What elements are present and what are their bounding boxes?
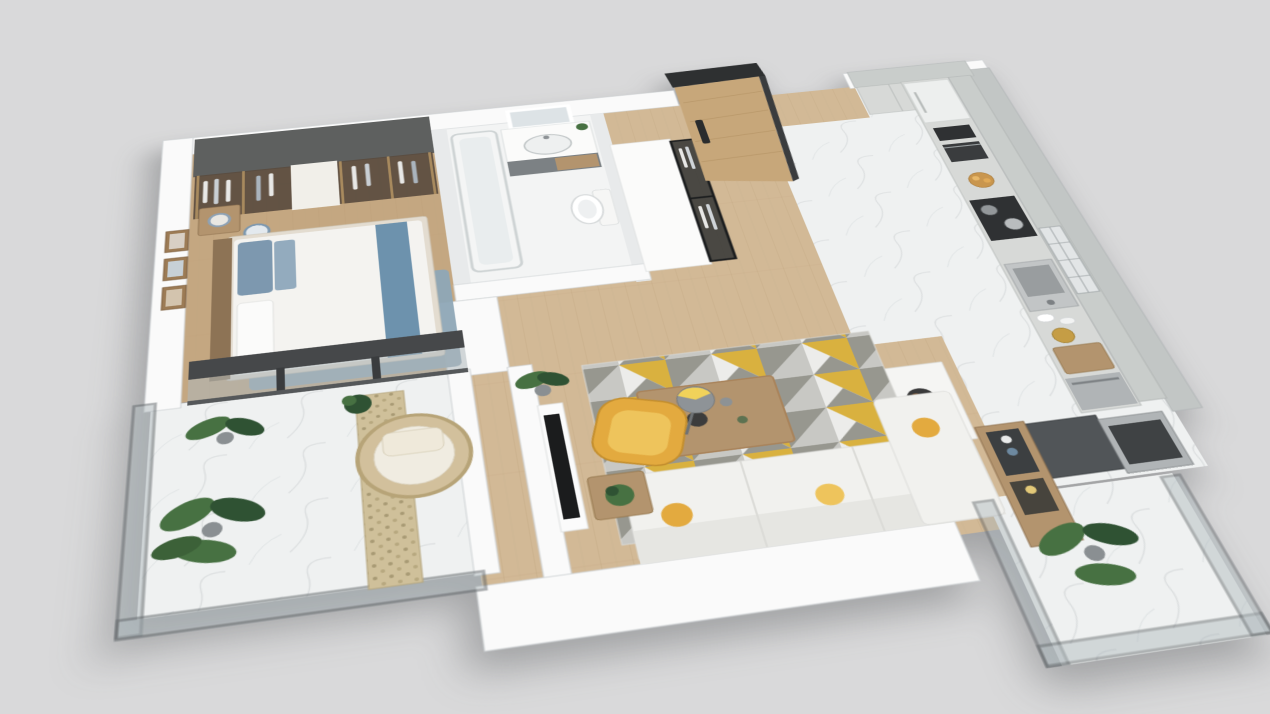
apartment-3d-scene <box>45 41 1270 714</box>
render-viewport <box>0 0 1270 714</box>
wall-picture-frames <box>161 229 189 310</box>
armchair-cushion <box>605 409 672 457</box>
side-table <box>587 470 654 520</box>
blue-pillow <box>237 239 273 296</box>
yellow-armchair <box>588 396 689 469</box>
floorplan-svg <box>45 41 1270 714</box>
blue-pillow-small <box>274 239 296 290</box>
wardrobe-center-panel <box>291 161 340 211</box>
